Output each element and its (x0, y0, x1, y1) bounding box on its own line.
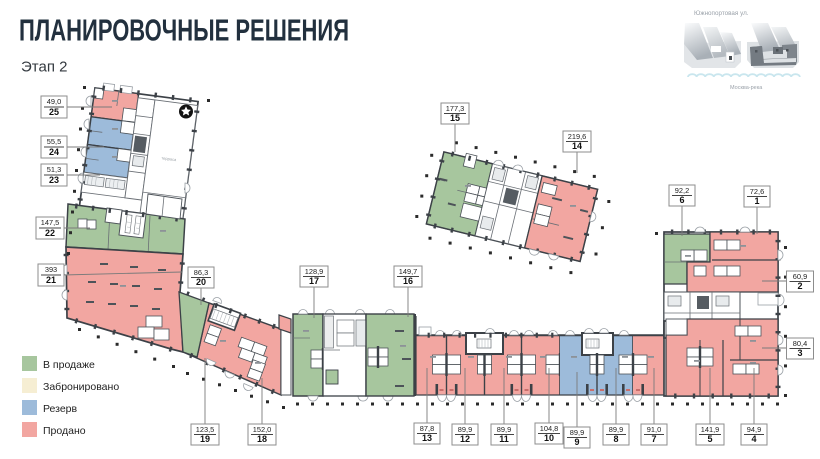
svg-text:49,0: 49,0 (47, 97, 61, 106)
svg-text:104,8: 104,8 (540, 424, 559, 433)
svg-text:5: 5 (707, 434, 712, 444)
svg-text:22: 22 (45, 228, 55, 238)
svg-text:51,3: 51,3 (47, 165, 61, 174)
svg-text:128,9: 128,9 (305, 267, 324, 276)
svg-text:147,5: 147,5 (41, 218, 60, 227)
svg-text:Южнопортовая ул.: Южнопортовая ул. (694, 10, 749, 17)
svg-text:12: 12 (460, 434, 470, 444)
svg-text:94,9: 94,9 (747, 425, 761, 434)
svg-text:Москва-река: Москва-река (730, 85, 763, 91)
svg-text:4: 4 (751, 434, 756, 444)
svg-text:11: 11 (499, 434, 509, 444)
svg-text:6: 6 (679, 195, 684, 205)
svg-text:141,9: 141,9 (701, 425, 720, 434)
svg-text:91,0: 91,0 (647, 425, 661, 434)
svg-text:3: 3 (797, 348, 802, 358)
svg-text:8: 8 (613, 434, 618, 444)
svg-text:19: 19 (200, 434, 210, 444)
svg-text:16: 16 (403, 276, 413, 286)
svg-text:ПЛАНИРОВОЧНЫЕ РЕШЕНИЯ: ПЛАНИРОВОЧНЫЕ РЕШЕНИЯ (19, 13, 349, 48)
svg-text:80,4: 80,4 (793, 339, 807, 348)
svg-text:Продано: Продано (43, 425, 86, 437)
svg-text:123,5: 123,5 (196, 425, 215, 434)
svg-text:15: 15 (450, 113, 460, 123)
svg-text:2: 2 (797, 281, 802, 291)
svg-text:177,3: 177,3 (446, 104, 465, 113)
svg-text:Забронировано: Забронировано (43, 381, 119, 393)
svg-text:152,0: 152,0 (253, 425, 272, 434)
svg-text:13: 13 (422, 433, 432, 443)
svg-text:Этап 2: Этап 2 (21, 59, 67, 76)
svg-text:18: 18 (257, 434, 267, 444)
svg-text:1: 1 (754, 196, 759, 206)
svg-text:23: 23 (49, 175, 59, 185)
svg-text:17: 17 (309, 276, 319, 286)
svg-text:55,5: 55,5 (47, 137, 61, 146)
svg-text:21: 21 (46, 275, 56, 285)
svg-text:14: 14 (572, 141, 582, 151)
svg-text:7: 7 (651, 434, 656, 444)
svg-text:60,9: 60,9 (793, 272, 807, 281)
svg-text:86,3: 86,3 (194, 268, 208, 277)
svg-text:Резерв: Резерв (43, 403, 78, 415)
svg-text:89,9: 89,9 (497, 425, 511, 434)
svg-text:9: 9 (574, 437, 579, 447)
svg-text:87,8: 87,8 (420, 424, 434, 433)
svg-text:20: 20 (196, 277, 206, 287)
svg-text:92,2: 92,2 (675, 186, 689, 195)
svg-text:В продаже: В продаже (43, 359, 95, 371)
svg-text:89,9: 89,9 (458, 425, 472, 434)
svg-text:10: 10 (544, 433, 554, 443)
svg-text:72,6: 72,6 (750, 187, 764, 196)
svg-text:25: 25 (49, 107, 59, 117)
svg-text:393: 393 (45, 265, 57, 274)
svg-text:219,6: 219,6 (568, 132, 587, 141)
svg-text:149,7: 149,7 (399, 267, 418, 276)
svg-text:89,9: 89,9 (570, 428, 584, 437)
svg-text:24: 24 (49, 147, 59, 157)
svg-text:89,9: 89,9 (609, 425, 623, 434)
